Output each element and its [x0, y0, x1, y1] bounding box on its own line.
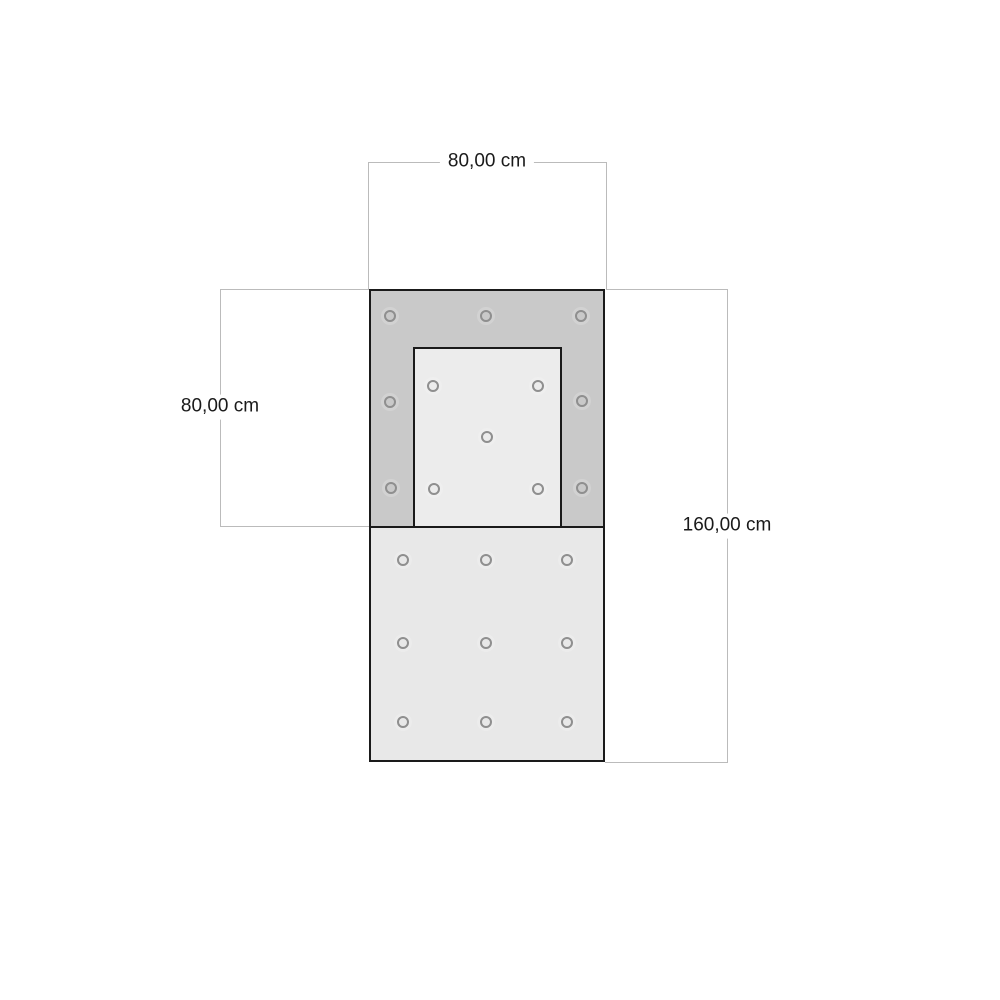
dimension-label-top: 80,00 cm	[440, 150, 534, 175]
extension-line-left-top	[220, 289, 369, 290]
hole-marker-inner-panel	[428, 483, 440, 495]
hole-marker-lower-panel	[480, 637, 492, 649]
extension-line-right-bottom	[605, 762, 727, 763]
hole-marker-lower-panel	[480, 716, 492, 728]
extension-line-top-right	[606, 162, 607, 289]
hole-marker-upper-frame	[385, 482, 397, 494]
hole-marker-inner-panel	[427, 380, 439, 392]
hole-marker-upper-frame	[575, 310, 587, 322]
hole-marker-upper-frame	[384, 310, 396, 322]
hole-marker-lower-panel	[397, 716, 409, 728]
hole-marker-lower-panel	[480, 554, 492, 566]
dimension-label-left: 80,00 cm	[173, 395, 267, 420]
dimension-label-right: 160,00 cm	[675, 514, 780, 539]
unit-outline	[369, 289, 605, 762]
hole-marker-inner-panel	[532, 380, 544, 392]
hole-marker-lower-panel	[561, 554, 573, 566]
diagram-canvas: 80,00 cm 80,00 cm 160,00 cm	[0, 0, 1000, 1000]
hole-marker-inner-panel	[481, 431, 493, 443]
hole-marker-inner-panel	[532, 483, 544, 495]
section-divider-line	[371, 526, 603, 528]
hole-marker-upper-frame	[576, 395, 588, 407]
extension-line-top-left	[368, 162, 369, 289]
hole-marker-lower-panel	[397, 554, 409, 566]
hole-marker-lower-panel	[561, 637, 573, 649]
hole-marker-upper-frame	[576, 482, 588, 494]
extension-line-left-bottom	[220, 526, 369, 527]
hole-marker-upper-frame	[480, 310, 492, 322]
hole-marker-upper-frame	[384, 396, 396, 408]
hole-marker-lower-panel	[397, 637, 409, 649]
hole-marker-lower-panel	[561, 716, 573, 728]
extension-line-right-top	[606, 289, 727, 290]
